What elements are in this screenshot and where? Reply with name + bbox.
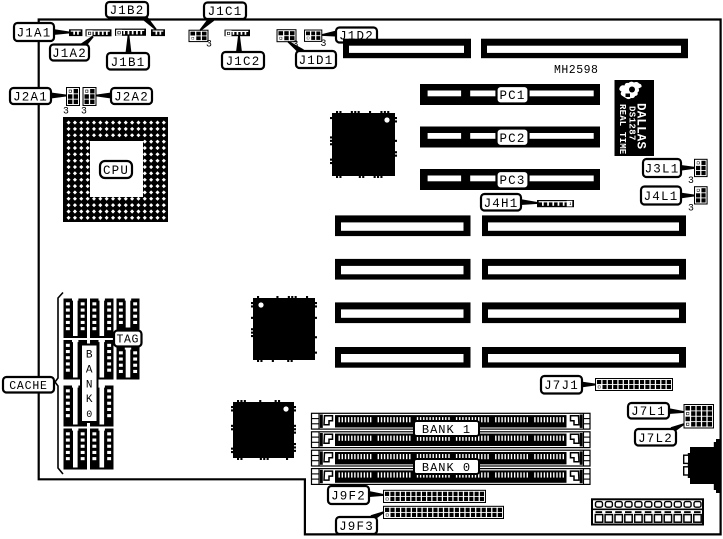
svg-text:J7L1: J7L1: [631, 405, 666, 419]
svg-text:CACHE: CACHE: [9, 380, 48, 393]
svg-text:J9F3: J9F3: [339, 520, 374, 534]
svg-text:B: B: [86, 350, 93, 362]
svg-text:J4L1: J4L1: [644, 190, 679, 204]
svg-text:3: 3: [81, 106, 87, 117]
svg-text:0: 0: [86, 410, 92, 421]
svg-text:3: 3: [321, 38, 327, 49]
svg-text:J3L1: J3L1: [645, 163, 680, 177]
svg-text:J1B1: J1B1: [111, 56, 146, 70]
svg-text:3: 3: [63, 106, 69, 117]
svg-text:A: A: [86, 364, 93, 376]
svg-text:J1A2: J1A2: [52, 47, 87, 61]
svg-text:CPU: CPU: [103, 164, 129, 178]
svg-text:PC3: PC3: [499, 174, 525, 188]
svg-text:J1C1: J1C1: [208, 5, 243, 19]
svg-text:J7L2: J7L2: [638, 432, 673, 446]
svg-text:J2A2: J2A2: [114, 91, 149, 105]
svg-text:J4H1: J4H1: [484, 197, 519, 211]
svg-text:TAG: TAG: [116, 334, 139, 347]
svg-text:BANK 1: BANK 1: [422, 423, 471, 437]
svg-text:N: N: [86, 379, 93, 391]
svg-text:DS1287: DS1287: [627, 106, 637, 141]
svg-text:J7J1: J7J1: [544, 379, 579, 393]
svg-text:J1B2: J1B2: [110, 4, 145, 18]
svg-text:J1A1: J1A1: [17, 27, 52, 41]
svg-text:J1D1: J1D1: [299, 54, 334, 68]
svg-text:REAL TIME: REAL TIME: [617, 104, 627, 155]
svg-text:MH2598: MH2598: [554, 64, 598, 77]
svg-text:J2A1: J2A1: [13, 91, 48, 105]
svg-text:3: 3: [688, 175, 694, 186]
svg-text:3: 3: [206, 39, 212, 50]
svg-text:J1C2: J1C2: [226, 55, 261, 69]
svg-text:BANK 0: BANK 0: [422, 461, 471, 475]
svg-text:3: 3: [688, 203, 694, 214]
svg-text:PC2: PC2: [499, 132, 525, 146]
svg-text:J9F2: J9F2: [331, 490, 366, 504]
svg-text:K: K: [86, 394, 93, 406]
svg-text:PC1: PC1: [499, 89, 525, 103]
